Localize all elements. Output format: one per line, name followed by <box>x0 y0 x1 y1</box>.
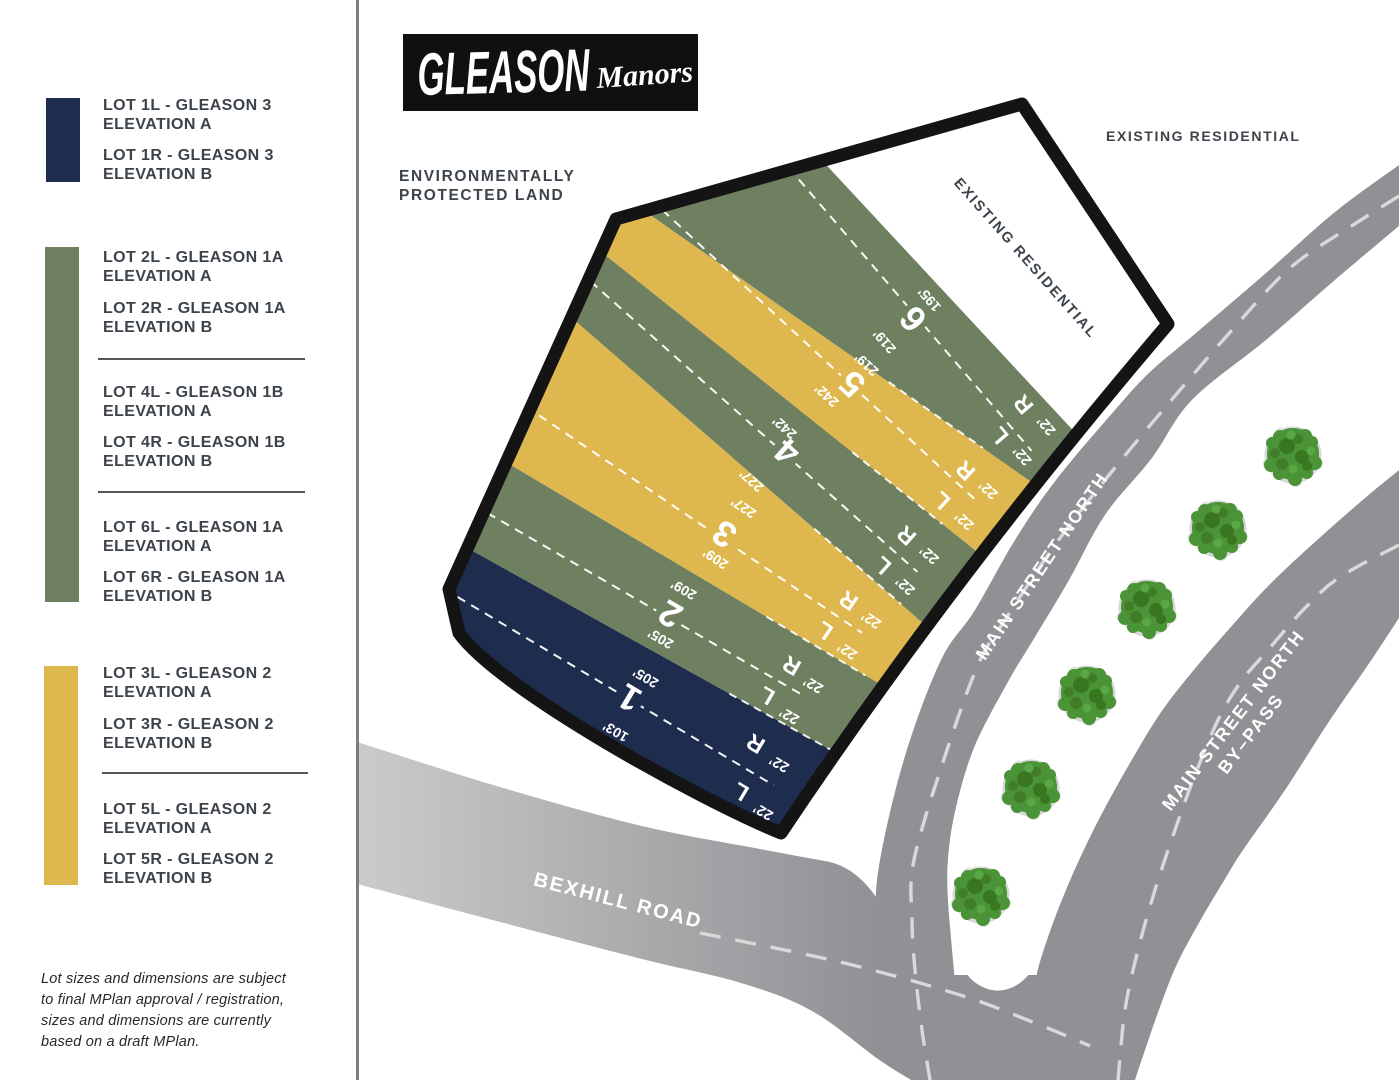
svg-text:GLEASON: GLEASON <box>417 36 592 108</box>
svg-text:EXISTING RESIDENTIAL: EXISTING RESIDENTIAL <box>1106 128 1301 144</box>
svg-text:ENVIRONMENTALLY: ENVIRONMENTALLY <box>399 168 575 185</box>
svg-text:PROTECTED LAND: PROTECTED LAND <box>399 187 564 204</box>
svg-text:Manors: Manors <box>594 55 694 95</box>
